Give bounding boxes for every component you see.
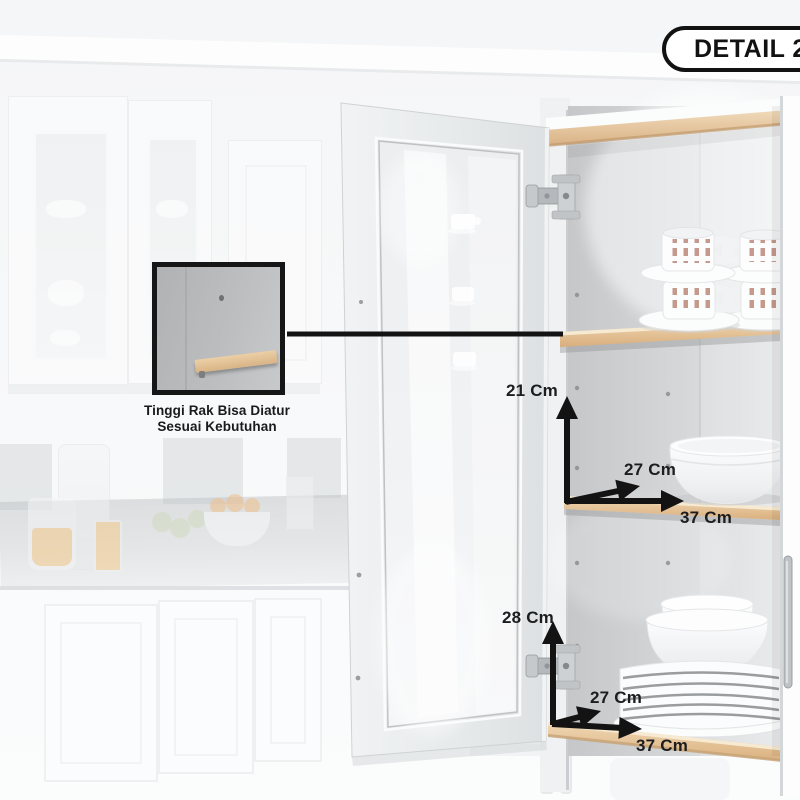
cup-and-saucer-stacks	[638, 228, 800, 334]
arrow-diagonal-icon	[553, 717, 581, 725]
dimension-arrows-bottom	[542, 621, 642, 739]
background-table-silhouette	[460, 738, 800, 800]
glass-cabinet-door	[8, 96, 128, 386]
fruit-bowl	[204, 512, 270, 546]
dimension-label-depth-middle: 27 Cm	[624, 460, 676, 480]
inset-caption: Tinggi Rak Bisa Diatur Sesuai Kebutuhan	[112, 403, 322, 434]
inset-adjustable-shelf	[195, 350, 278, 373]
dimension-label-height-bottom: 28 Cm	[492, 608, 554, 628]
door-handle	[784, 556, 792, 688]
inset-caption-line2: Sesuai Kebutuhan	[112, 419, 322, 435]
product-detail-image: Tinggi Rak Bisa Diatur Sesuai Kebutuhan …	[0, 0, 800, 800]
inset-caption-line1: Tinggi Rak Bisa Diatur	[112, 403, 322, 419]
juice-glass	[94, 520, 122, 572]
toaster-oven	[392, 464, 458, 520]
detail-badge-label: DETAIL 2	[694, 35, 800, 64]
drinking-glass	[286, 476, 314, 530]
hinge-bottom-icon	[526, 645, 580, 689]
inset-shelf-support	[199, 371, 205, 378]
cabinet-carcass	[540, 90, 800, 792]
detail-badge: DETAIL 2	[662, 26, 800, 72]
dimension-label-width-bottom: 37 Cm	[636, 736, 688, 756]
right-cabinet-door	[772, 96, 800, 796]
arrow-right-icon	[552, 724, 623, 728]
inset-pin-hole	[219, 295, 224, 301]
dimension-arrows-middle	[556, 396, 684, 512]
shelf-zoom-inset	[152, 262, 285, 395]
background-counter-items	[0, 430, 470, 590]
juice-pitcher	[28, 498, 76, 570]
background-base-cabinets	[0, 586, 474, 800]
hinge-top-icon	[526, 175, 580, 219]
dimension-label-depth-bottom: 27 Cm	[590, 688, 642, 708]
cabinet-top-edge	[546, 109, 800, 146]
top-shelf	[560, 319, 800, 353]
inset-wall-seam	[185, 267, 187, 390]
dimension-label-width-middle: 37 Cm	[680, 508, 732, 528]
arrow-diagonal-icon	[566, 491, 618, 502]
cabinet-glass	[33, 131, 109, 361]
bowl-middle-shelf	[670, 436, 788, 506]
bowls-and-plates-bottom-shelf	[614, 595, 788, 737]
dimension-label-height-middle: 21 Cm	[496, 381, 558, 401]
